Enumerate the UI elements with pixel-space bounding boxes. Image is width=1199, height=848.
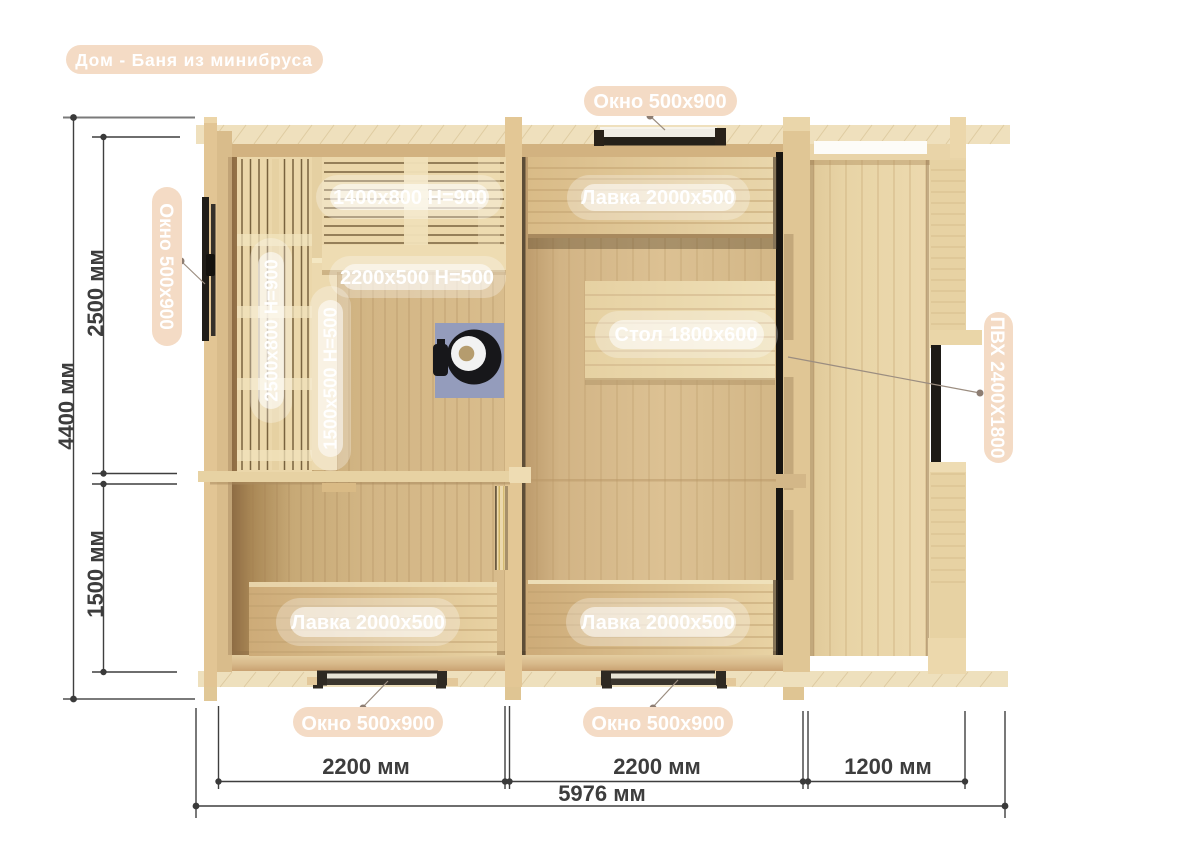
svg-text:Лавка 2000х500: Лавка 2000х500 [581, 612, 735, 634]
svg-text:Лавка 2000х500: Лавка 2000х500 [291, 612, 445, 634]
svg-text:5976 мм: 5976 мм [558, 781, 646, 806]
svg-text:Дом - Баня из минибруса: Дом - Баня из минибруса [75, 50, 313, 70]
svg-text:2200х500 Н=500: 2200х500 Н=500 [340, 267, 494, 289]
svg-text:2200 мм: 2200 мм [613, 754, 701, 779]
svg-text:1200 мм: 1200 мм [844, 754, 932, 779]
svg-text:1400х800 Н=900: 1400х800 Н=900 [333, 187, 487, 209]
svg-text:4400 мм: 4400 мм [54, 362, 79, 450]
svg-text:Лавка 2000х500: Лавка 2000х500 [581, 187, 735, 209]
svg-text:ПВХ 2400Х1800: ПВХ 2400Х1800 [986, 317, 1007, 459]
svg-text:2200 мм: 2200 мм [322, 754, 410, 779]
svg-text:2500х800 Н=900: 2500х800 Н=900 [261, 259, 282, 401]
svg-text:Стол 1800х600: Стол 1800х600 [615, 324, 758, 346]
svg-text:1500 мм: 1500 мм [83, 530, 108, 618]
svg-text:2500 мм: 2500 мм [83, 249, 108, 337]
svg-text:Окно 500х900: Окно 500х900 [155, 203, 176, 330]
svg-text:Окно 500х900: Окно 500х900 [591, 713, 724, 735]
svg-text:Окно 500х900: Окно 500х900 [301, 713, 434, 735]
svg-text:Окно 500х900: Окно 500х900 [593, 91, 726, 113]
svg-text:1500х500 Н=500: 1500х500 Н=500 [320, 307, 341, 449]
